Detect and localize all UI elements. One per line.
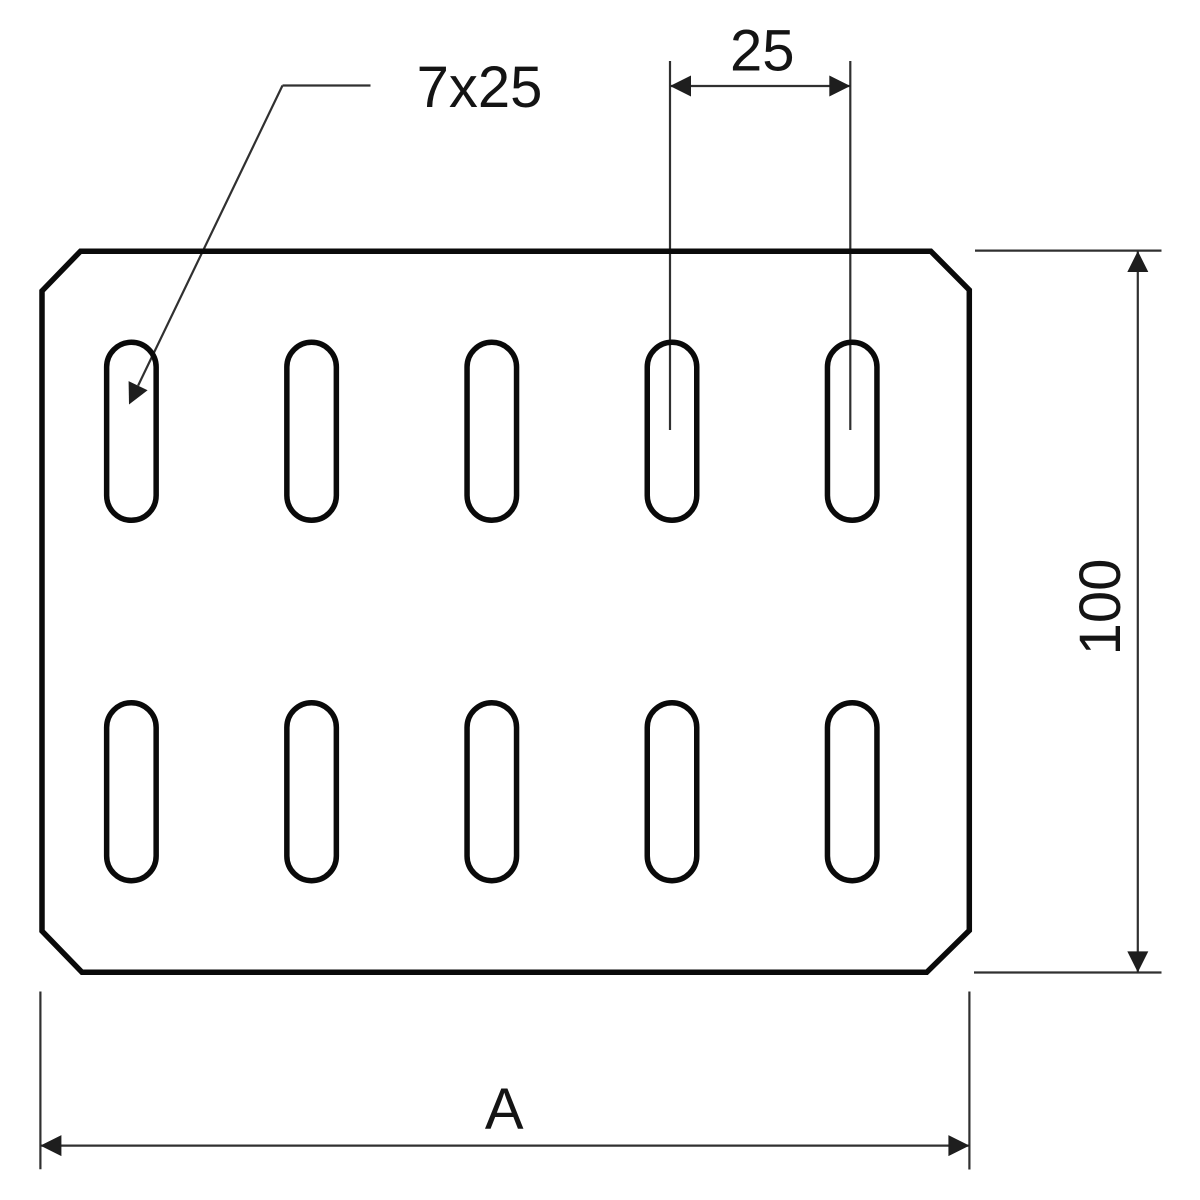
svg-text:100: 100 bbox=[1068, 559, 1133, 656]
svg-text:25: 25 bbox=[730, 19, 795, 84]
svg-text:7x25: 7x25 bbox=[417, 55, 543, 120]
svg-text:A: A bbox=[485, 1077, 524, 1142]
